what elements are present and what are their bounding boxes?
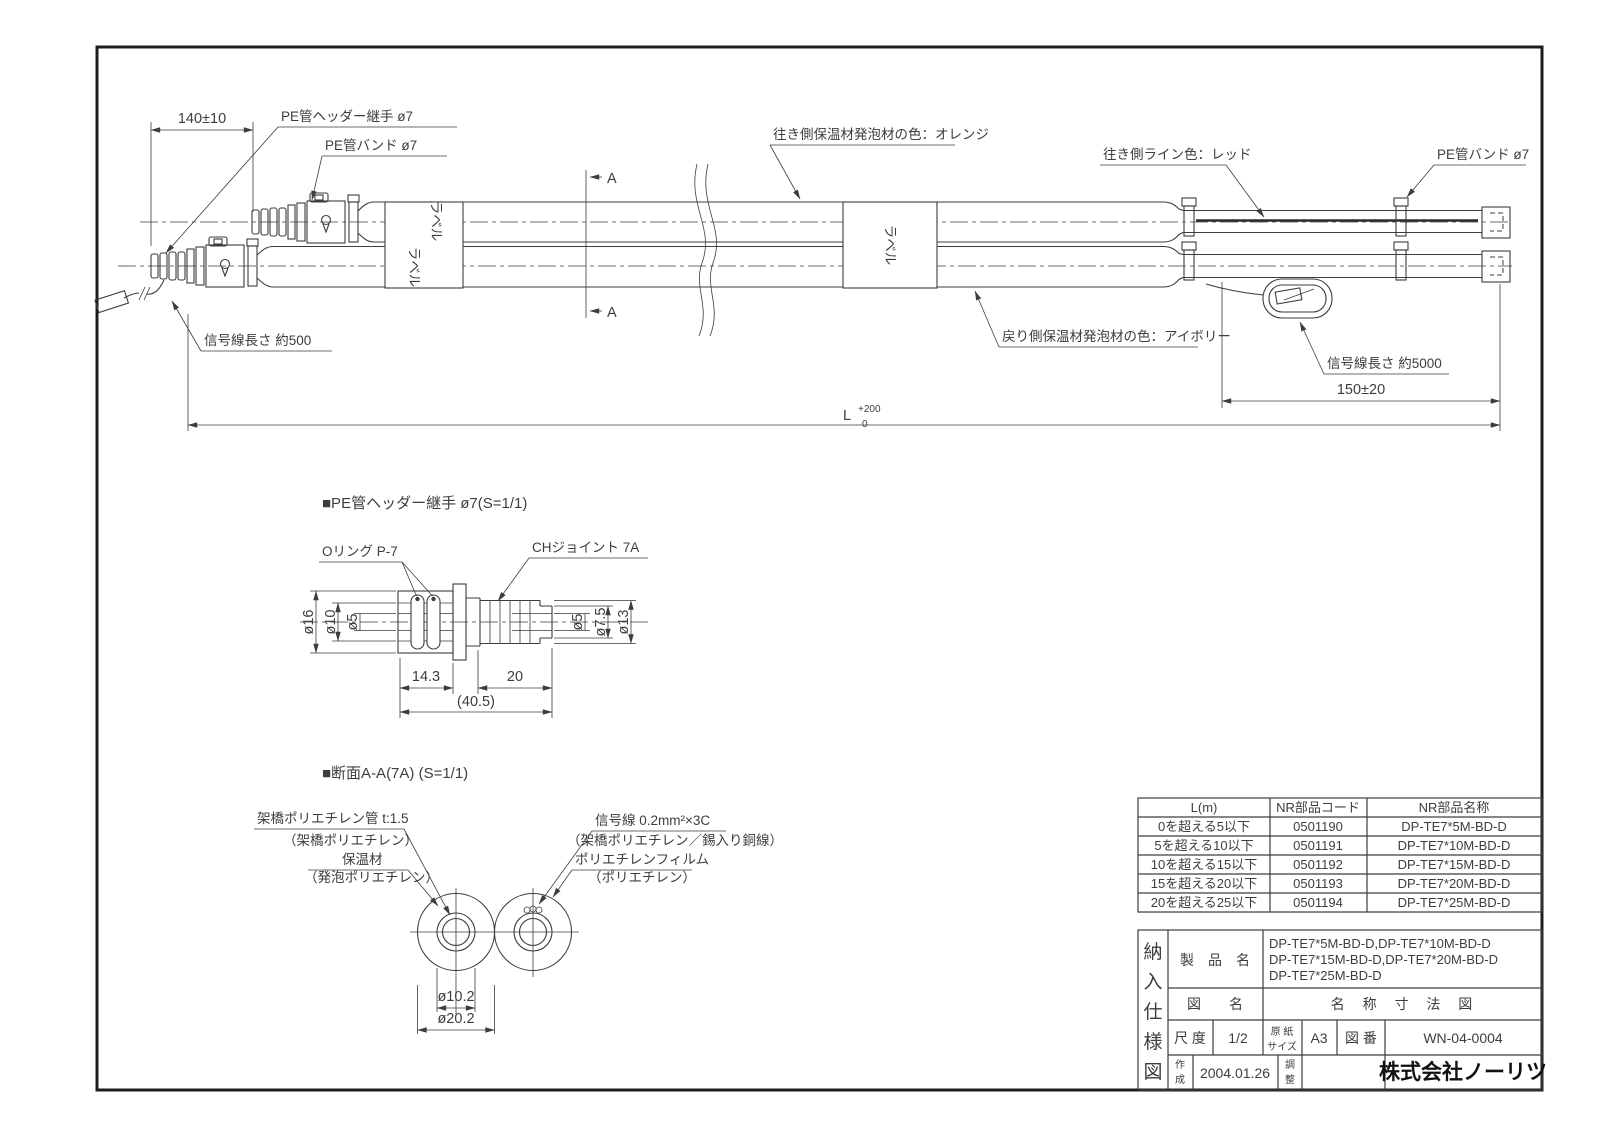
- return-header-joint-fitting: [151, 237, 258, 287]
- annotation-insulation: 保温材 （発泡ポリエチレン）: [304, 852, 439, 906]
- section-marker-top: A: [607, 171, 617, 187]
- annotation-ch-joint: CHジョイント 7A: [498, 540, 648, 601]
- doc-type-char: 入: [1143, 972, 1162, 993]
- doc-type-char: 図: [1143, 1062, 1162, 1083]
- dia-20-2-text: ø20.2: [437, 1011, 474, 1027]
- supply-end-connector: [1482, 207, 1510, 238]
- drawing-frame: [97, 47, 1542, 1090]
- section-detail-title: ■断面A-A(7A) (S=1/1): [322, 765, 468, 782]
- annotation-subtext: （架橋ポリエチレン／錫入り銅線）: [567, 833, 783, 848]
- joint-left-dims: ø16 ø10 ø5: [301, 591, 396, 653]
- company-name: 株式会社ノーリツ: [1379, 1060, 1547, 1084]
- annotation-text: 戻り側保温材発泡材の色：アイボリー: [1002, 328, 1231, 344]
- col-header-name: NR部品名称: [1419, 800, 1490, 815]
- annotation-text: 信号線長さ 約500: [204, 333, 311, 348]
- product-label: 製 品 名: [1180, 952, 1250, 968]
- joint-detail-view: ■PE管ヘッダー継手 ø7(S=1/1) ø16 ø10 ø5: [300, 495, 648, 718]
- annotation-supply-insulation-color: 往き側保温材発泡材の色：オレンジ: [770, 126, 989, 199]
- label-tag-text: ラベル: [407, 247, 422, 288]
- dia-7-5-text: ø7.5: [593, 607, 609, 636]
- label-tag-text: ラベル: [429, 201, 444, 242]
- cell-name: DP-TE7*15M-BD-D: [1398, 857, 1511, 872]
- cell-code: 0501194: [1293, 895, 1343, 910]
- title-block: 納 入 仕 様 図 製 品 名 DP-TE7*5M-BD-D,DP-TE7*10…: [1138, 930, 1547, 1090]
- cell-l: 10を超える15以下: [1151, 857, 1258, 872]
- joint-bottom-dims: 14.3 20 (40.5): [400, 648, 552, 718]
- dim-l-tol-lower: 0: [862, 419, 868, 430]
- annotation-text: 信号線長さ 約5000: [1327, 356, 1442, 371]
- annotation-pe-band-left: PE管バンド ø7: [312, 138, 447, 200]
- section-line-a-a: A A: [586, 170, 617, 321]
- dim-l-text: L: [843, 408, 851, 424]
- cell-l: 20を超える25以下: [1151, 895, 1258, 910]
- cell-name: DP-TE7*10M-BD-D: [1398, 838, 1511, 853]
- dia-10-text: ø10: [323, 610, 339, 635]
- dim-20-text: 20: [507, 669, 523, 685]
- annotation-oring: Oリング P-7: [319, 544, 433, 596]
- break-lines: [695, 164, 717, 336]
- cell-name: DP-TE7*25M-BD-D: [1398, 895, 1511, 910]
- adjust-label-2: 整: [1285, 1073, 1295, 1086]
- label-box-2: ラベル: [843, 202, 937, 288]
- product-line-1: DP-TE7*5M-BD-D,DP-TE7*10M-BD-D: [1269, 936, 1491, 951]
- annotation-signal-length-left: 信号線長さ 約500: [172, 301, 332, 351]
- cell-code: 0501191: [1293, 838, 1343, 853]
- engineering-drawing: ラベル ラベル ラベル A A: [0, 0, 1600, 1131]
- dia-16-text: ø16: [301, 610, 317, 635]
- col-header-l: L(m): [1191, 800, 1218, 815]
- cell-name: DP-TE7*5M-BD-D: [1401, 819, 1506, 834]
- paper-label-2: サイズ: [1267, 1040, 1297, 1053]
- doc-type-char: 納: [1143, 941, 1162, 963]
- annotation-text: 信号線 0.2mm²×3C: [595, 813, 710, 828]
- joint-right-dims: ø5 ø7.5 ø13: [554, 601, 636, 644]
- drawing-no-label: 図 番: [1345, 1030, 1377, 1046]
- annotation-text: PE管バンド ø7: [325, 138, 417, 153]
- main-assembly-view: ラベル ラベル ラベル A A: [95, 109, 1529, 431]
- annotation-text: CHジョイント 7A: [532, 540, 639, 555]
- created-value: 2004.01.26: [1200, 1065, 1270, 1081]
- paper-label-1: 原 紙: [1271, 1025, 1294, 1038]
- product-line-3: DP-TE7*25M-BD-D: [1269, 968, 1382, 983]
- annotation-text: 往き側保温材発泡材の色：オレンジ: [773, 126, 989, 142]
- section-detail-view: ■断面A-A(7A) (S=1/1) 架橋ポリエチレン管 t:1.5 （架橋ポリ…: [254, 765, 783, 1034]
- annotation-pe-film: ポリエチレンフィルム （ポリエチレン）: [553, 852, 709, 897]
- annotation-text: Oリング P-7: [322, 544, 398, 559]
- annotation-text: PE管ヘッダー継手 ø7: [281, 109, 413, 124]
- drawing-no-value: WN-04-0004: [1423, 1030, 1503, 1046]
- created-label-2: 成: [1175, 1074, 1185, 1086]
- dim-140-text: 140±10: [178, 111, 226, 127]
- dia-5-right-text: ø5: [570, 614, 586, 631]
- cell-name: DP-TE7*20M-BD-D: [1398, 876, 1511, 891]
- cell-l: 5を超える10以下: [1154, 838, 1253, 853]
- doc-type-char: 様: [1143, 1031, 1162, 1053]
- dim-40-5-text: (40.5): [457, 694, 495, 710]
- col-header-code: NR部品コード: [1276, 800, 1360, 815]
- cell-l: 15を超える20以下: [1151, 876, 1258, 891]
- cell-code: 0501190: [1293, 819, 1343, 834]
- label-tag-text: ラベル: [883, 225, 898, 266]
- dimension-140: 140±10: [151, 111, 253, 246]
- scale-value: 1/2: [1228, 1030, 1248, 1046]
- cell-code: 0501192: [1293, 857, 1343, 872]
- doc-type-vertical: 納 入 仕 様 図: [1143, 941, 1162, 1083]
- annotation-text: ポリエチレンフィルム: [575, 852, 709, 867]
- joint-detail-title: ■PE管ヘッダー継手 ø7(S=1/1): [322, 495, 527, 512]
- dim-14-3-text: 14.3: [412, 669, 440, 685]
- paper-value: A3: [1310, 1030, 1327, 1046]
- fig-name: 名 称 寸 法 図: [1331, 996, 1480, 1012]
- supply-header-joint-fitting: [252, 193, 359, 243]
- annotation-text: 往き側ライン色：レッド: [1103, 146, 1252, 162]
- dia-5-left-text: ø5: [345, 614, 361, 631]
- dimension-l: L +200 0: [188, 314, 1500, 431]
- cell-code: 0501193: [1293, 876, 1343, 891]
- table-row: 20を超える25以下 0501194 DP-TE7*25M-BD-D: [1151, 895, 1511, 910]
- drawing-page: ラベル ラベル ラベル A A: [0, 0, 1600, 1131]
- product-line-2: DP-TE7*15M-BD-D,DP-TE7*20M-BD-D: [1269, 952, 1498, 967]
- annotation-subtext: （ポリエチレン）: [588, 870, 696, 885]
- annotation-pe-band-right: PE管バンド ø7: [1407, 147, 1529, 197]
- adjust-label-1: 調: [1285, 1058, 1295, 1071]
- annotation-text: PE管バンド ø7: [1437, 147, 1529, 162]
- left-signal-wire: [95, 280, 164, 313]
- dim-l-tol-upper: +200: [858, 404, 881, 415]
- cell-l: 0を超える5以下: [1158, 819, 1250, 834]
- table-row: 5を超える10以下 0501191 DP-TE7*10M-BD-D: [1154, 838, 1510, 853]
- created-label-1: 作: [1175, 1059, 1185, 1071]
- dia-13-text: ø13: [616, 610, 632, 635]
- right-signal-wire-coil: [1206, 279, 1332, 318]
- table-row: 0を超える5以下 0501190 DP-TE7*5M-BD-D: [1158, 819, 1507, 834]
- label-box-1: ラベル ラベル: [385, 201, 463, 288]
- annotation-signal-length-right: 信号線長さ 約5000: [1300, 322, 1449, 374]
- dim-150-text: 150±20: [1337, 382, 1385, 398]
- annotation-return-insulation-color: 戻り側保温材発泡材の色：アイボリー: [975, 291, 1231, 347]
- return-end-connector: [1482, 251, 1510, 282]
- scale-label: 尺 度: [1174, 1030, 1206, 1046]
- dia-10-2-text: ø10.2: [437, 989, 474, 1005]
- section-marker-bottom: A: [607, 305, 617, 321]
- annotation-subtext: （発泡ポリエチレン）: [304, 870, 439, 885]
- table-row: 15を超える20以下 0501193 DP-TE7*20M-BD-D: [1151, 876, 1511, 891]
- annotation-text: 架橋ポリエチレン管 t:1.5: [257, 811, 409, 826]
- annotation-text: 保温材: [342, 852, 383, 867]
- fig-label: 図 名: [1187, 996, 1243, 1012]
- parts-table: L(m) NR部品コード NR部品名称 0を超える5以下 0501190 DP-…: [1138, 798, 1542, 912]
- annotation-subtext: （架橋ポリエチレン）: [283, 833, 418, 848]
- table-row: 10を超える15以下 0501192 DP-TE7*15M-BD-D: [1151, 857, 1511, 872]
- doc-type-char: 仕: [1143, 1001, 1162, 1023]
